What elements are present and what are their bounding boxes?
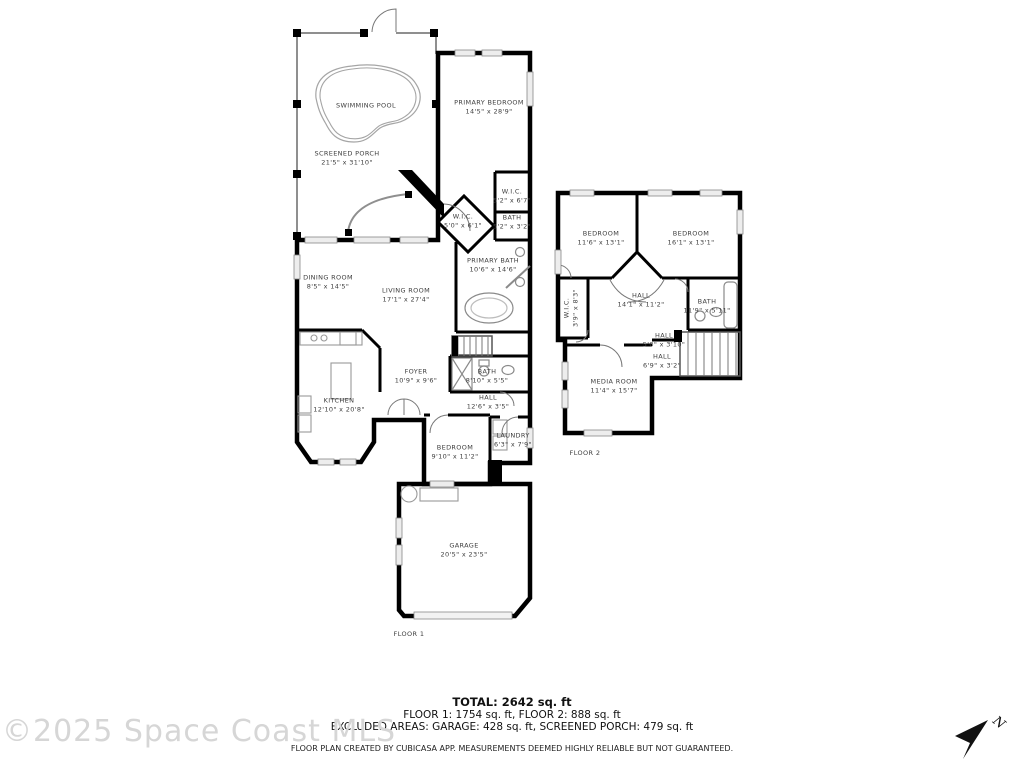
room-label-laundry: LAUNDRY 6'3" x 7'9": [494, 432, 532, 451]
floor1-windows: [294, 50, 533, 619]
room-label-hall-f1: HALL 12'6" x 3'5": [467, 394, 509, 413]
room-label-bath-small: BATH 5'2" x 3'2": [493, 214, 531, 233]
summary-total: TOTAL: 2642 sq. ft: [0, 695, 1024, 709]
room-label-primary-bath: PRIMARY BATH 10'6" x 14'6": [467, 257, 519, 276]
room-label-hall-f2-main: HALL 14'1" x 11'2": [618, 292, 665, 311]
watermark: ©2025 Space Coast MLS: [2, 714, 396, 749]
room-label-primary-bedroom: PRIMARY BEDROOM 14'5" x 28'9": [454, 99, 524, 118]
room-label-foyer: FOYER 10'9" x 9'6": [395, 368, 437, 387]
room-label-living-room: LIVING ROOM 17'1" x 27'4": [382, 287, 430, 306]
room-label-dining-room: DINING ROOM 8'5" x 14'5": [303, 274, 353, 293]
room-label-wic-1: W.I.C. 5'2" x 6'7": [493, 188, 531, 207]
room-label-wic-f2: W.I.C. 3'9" x 8'3": [563, 289, 582, 327]
garage-fixtures: [401, 486, 458, 502]
room-label-kitchen: KITCHEN 12'10" x 20'8": [313, 397, 364, 416]
floor2-interior-walls: [558, 193, 740, 345]
room-label-bedroom-f1: BEDROOM 9'10" x 11'2": [432, 444, 479, 463]
kitchen-fixtures: [298, 332, 362, 432]
room-label-bath-f2: BATH 11'9" x 5'11": [684, 298, 731, 317]
wall-post: [345, 229, 352, 236]
wall-chunk: [488, 460, 502, 484]
porch-door-arc: [372, 9, 396, 32]
room-label-screened-porch: SCREENED PORCH 21'5" x 31'10": [315, 150, 380, 169]
room-label-bedroom2-right: BEDROOM 16'1" x 13'1": [668, 230, 715, 249]
curved-window-wall: [348, 194, 408, 232]
wall-post: [405, 191, 412, 198]
room-label-media-room: MEDIA ROOM 11'4" x 15'7": [590, 378, 637, 397]
room-label-hall-f2-small2: HALL 6'9" x 3'2": [643, 353, 681, 372]
room-label-wic-2: W.I.C. 5'0" x 6'1": [444, 213, 482, 232]
floor2-tag: FLOOR 2: [570, 449, 601, 457]
room-label-garage: GARAGE 20'5" x 23'5": [441, 542, 488, 561]
room-label-bath-hall: BATH 8'10" x 5'5": [466, 368, 508, 387]
stairs-floor1: [452, 336, 492, 356]
porch-posts: [293, 29, 440, 240]
floor-plan-page: N SWIMMING POOL SCREENED PORCH 21'5" x 3…: [0, 0, 1024, 768]
room-label-hall-f2-small1: HALL 5'0" x 3'10": [643, 332, 685, 351]
room-label-swimming-pool: SWIMMING POOL: [336, 101, 396, 110]
room-label-bedroom2-left: BEDROOM 11'6" x 13'1": [578, 230, 625, 249]
floor1-tag: FLOOR 1: [394, 630, 425, 638]
